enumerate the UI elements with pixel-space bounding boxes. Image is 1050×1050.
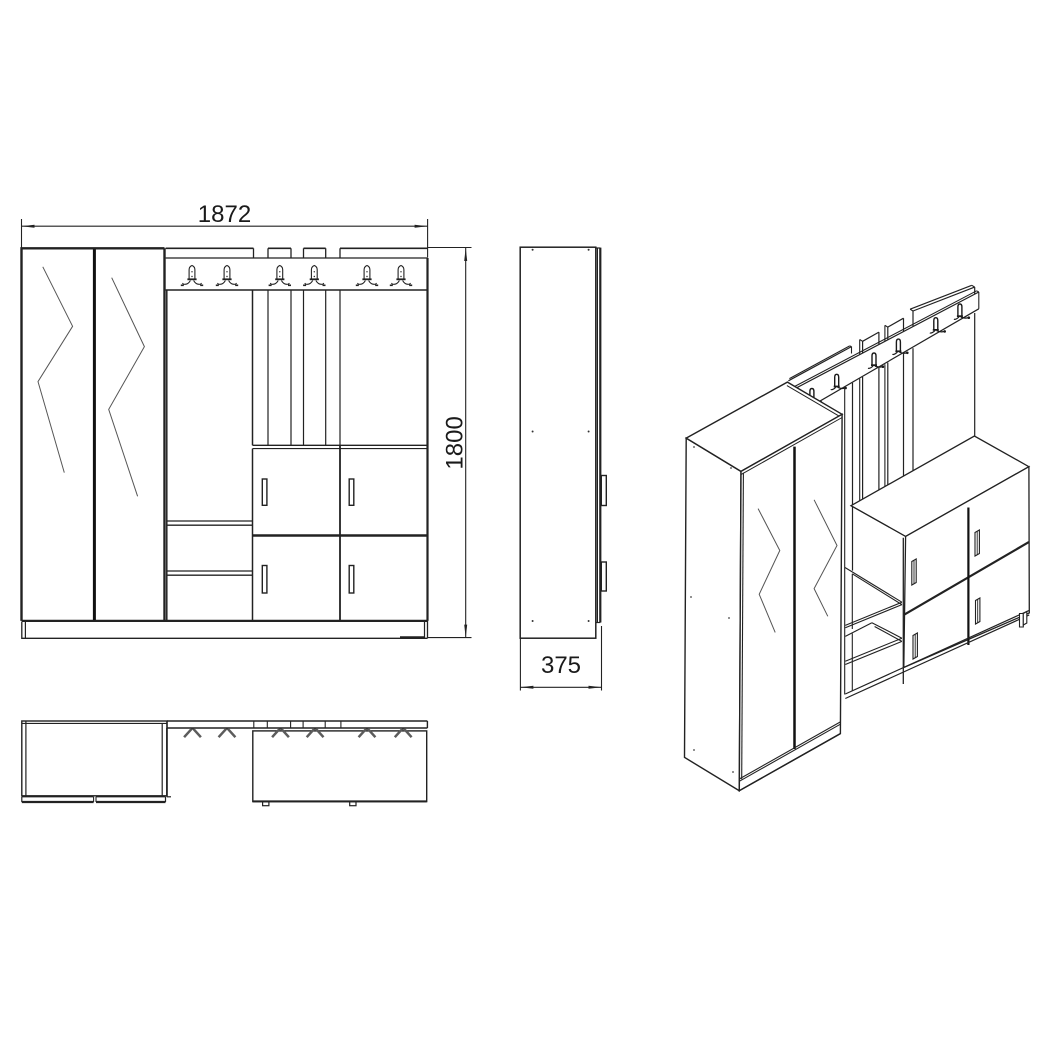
svg-text:375: 375 <box>541 652 581 679</box>
svg-text:1872: 1872 <box>198 201 251 228</box>
svg-text:1800: 1800 <box>442 416 469 469</box>
